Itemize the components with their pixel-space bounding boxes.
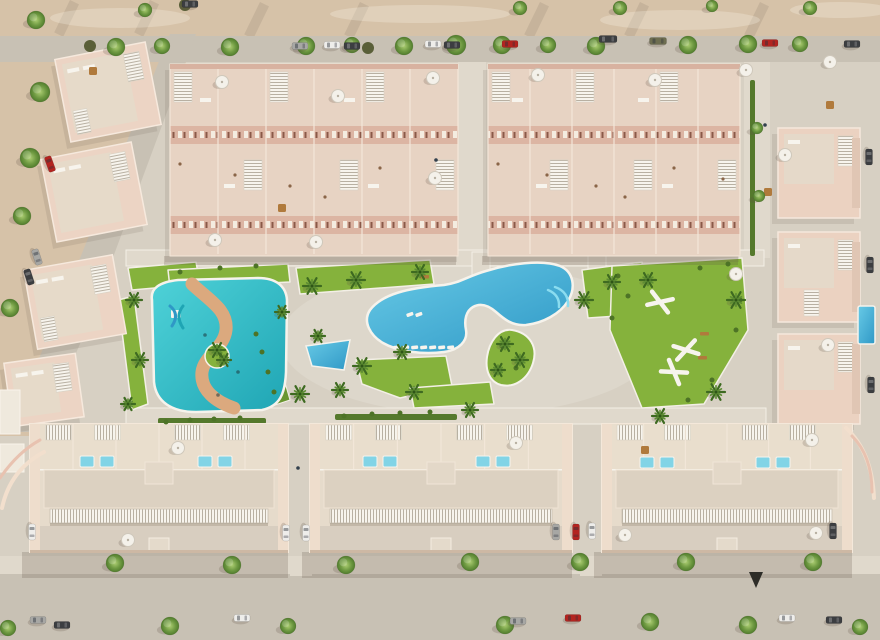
umbrella-pole bbox=[829, 61, 831, 63]
palm-crown bbox=[216, 349, 219, 352]
umbrella-pole bbox=[315, 241, 317, 243]
palm-crown bbox=[519, 359, 522, 362]
front-wall bbox=[30, 550, 288, 553]
shrub bbox=[272, 390, 277, 395]
car-body bbox=[866, 149, 873, 165]
pergola bbox=[366, 72, 384, 102]
umbrella-pole bbox=[745, 69, 747, 71]
tree-highlight bbox=[589, 39, 597, 47]
car-rear-window bbox=[455, 43, 458, 48]
car-windshield bbox=[847, 42, 850, 47]
palm-crown bbox=[715, 391, 718, 394]
edge-building bbox=[0, 390, 20, 434]
patio-furniture bbox=[545, 173, 548, 176]
lounger bbox=[447, 345, 454, 349]
pergola bbox=[340, 160, 358, 190]
tree-highlight bbox=[108, 556, 116, 564]
patio-furniture bbox=[672, 166, 675, 169]
left-villa bbox=[50, 42, 162, 149]
entry-step bbox=[149, 538, 169, 552]
car bbox=[26, 522, 36, 540]
right-villa bbox=[772, 334, 860, 430]
tree-highlight bbox=[156, 40, 163, 47]
car-rear-window bbox=[303, 44, 306, 49]
shrub bbox=[238, 416, 243, 421]
pergola bbox=[804, 290, 819, 316]
roof-lounger bbox=[368, 184, 379, 188]
pergola bbox=[660, 72, 678, 102]
tree-highlight bbox=[755, 192, 760, 197]
alley bbox=[458, 62, 486, 258]
car-windshield bbox=[185, 2, 188, 7]
tree-highlight bbox=[573, 555, 581, 563]
louver-shadow bbox=[330, 523, 552, 526]
palm-crown bbox=[735, 299, 738, 302]
pergola bbox=[838, 136, 853, 166]
tree-highlight bbox=[109, 40, 117, 48]
car-windshield bbox=[868, 260, 873, 263]
patio-set bbox=[278, 204, 286, 212]
car-body bbox=[425, 41, 441, 48]
entry-step bbox=[717, 538, 737, 552]
car-rear-window bbox=[41, 618, 44, 623]
car-windshield bbox=[304, 528, 309, 531]
umbrella-pole bbox=[624, 534, 626, 536]
bench bbox=[700, 332, 709, 336]
car-body bbox=[30, 617, 46, 624]
umbrella-pole bbox=[827, 344, 829, 346]
left-villa bbox=[36, 142, 148, 249]
shrub bbox=[178, 270, 183, 275]
tree-highlight bbox=[806, 555, 814, 563]
tree-highlight bbox=[339, 558, 347, 566]
car-body bbox=[54, 622, 70, 629]
palm-crown bbox=[647, 279, 650, 282]
side-pool bbox=[858, 306, 875, 344]
car-body bbox=[779, 615, 795, 622]
shrub bbox=[254, 264, 259, 269]
car-windshield bbox=[284, 528, 289, 531]
patio-furniture bbox=[323, 195, 326, 198]
palm-crown bbox=[361, 365, 364, 368]
car-body bbox=[830, 523, 837, 539]
car-windshield bbox=[428, 42, 431, 47]
bottom-building bbox=[30, 424, 288, 553]
palm-crown bbox=[133, 299, 136, 302]
lounger bbox=[429, 345, 436, 349]
car-windshield bbox=[869, 380, 874, 383]
lounger bbox=[411, 345, 418, 349]
louver-shadow bbox=[50, 523, 268, 526]
lounger bbox=[438, 345, 445, 349]
car-body bbox=[599, 36, 617, 43]
palm-crown bbox=[413, 391, 416, 394]
car-body bbox=[510, 618, 526, 625]
tree-highlight bbox=[498, 618, 506, 626]
car-body bbox=[234, 615, 250, 622]
tree-highlight bbox=[29, 13, 37, 21]
pergola bbox=[270, 72, 288, 102]
car-windshield bbox=[554, 527, 559, 530]
pergola bbox=[742, 425, 768, 440]
car bbox=[865, 375, 875, 393]
patio-furniture bbox=[594, 184, 597, 187]
car bbox=[864, 255, 874, 273]
bottom-buildings bbox=[0, 424, 874, 553]
car bbox=[760, 40, 778, 50]
bottom-building bbox=[310, 424, 572, 553]
palm-crown bbox=[583, 299, 586, 302]
shrub bbox=[188, 418, 193, 423]
palm-crown bbox=[139, 359, 142, 362]
tree-highlight bbox=[708, 1, 713, 6]
umbrella-pole bbox=[177, 447, 179, 449]
car bbox=[322, 42, 340, 52]
umbrella-pole bbox=[654, 79, 656, 81]
palm-crown bbox=[401, 351, 404, 354]
car-body bbox=[502, 41, 518, 48]
car-windshield bbox=[295, 44, 298, 49]
tree-highlight bbox=[282, 620, 289, 627]
car-rear-window bbox=[790, 616, 793, 621]
roof-lounger bbox=[788, 244, 800, 248]
patio-set bbox=[89, 67, 97, 75]
tree-highlight bbox=[397, 39, 405, 47]
car-rear-window bbox=[855, 42, 858, 47]
front-wall bbox=[602, 550, 852, 553]
umbrella-pole bbox=[221, 81, 223, 83]
car-body bbox=[553, 524, 560, 540]
pergola bbox=[174, 72, 192, 102]
palm-crown bbox=[299, 393, 302, 396]
tree-highlight bbox=[679, 555, 687, 563]
shrub bbox=[710, 378, 715, 383]
car-body bbox=[573, 524, 580, 540]
left-villa bbox=[19, 255, 127, 356]
lounger bbox=[420, 345, 427, 349]
car-body bbox=[589, 523, 596, 539]
roof-pool bbox=[476, 456, 490, 467]
car bbox=[290, 43, 308, 53]
roof-pool bbox=[776, 457, 790, 468]
car-rear-window bbox=[869, 388, 874, 391]
side-wing bbox=[602, 424, 612, 552]
tree-highlight bbox=[805, 3, 811, 9]
car-windshield bbox=[513, 619, 516, 624]
tree-highlight bbox=[140, 5, 146, 11]
palm-crown bbox=[281, 311, 284, 314]
tri-pool bbox=[306, 340, 350, 370]
car-rear-window bbox=[867, 160, 872, 163]
car bbox=[28, 617, 46, 627]
louver-shadow bbox=[622, 523, 832, 526]
car-rear-window bbox=[513, 42, 516, 47]
car-windshield bbox=[867, 152, 872, 155]
patio-set bbox=[641, 446, 649, 454]
car-rear-window bbox=[612, 37, 615, 42]
person bbox=[434, 158, 438, 162]
shrub bbox=[212, 417, 217, 422]
car bbox=[232, 615, 250, 625]
patio-set bbox=[826, 101, 834, 109]
roof-pool bbox=[496, 456, 510, 467]
car-rear-window bbox=[661, 39, 664, 44]
roof-pool bbox=[218, 456, 232, 467]
umbrella-pole bbox=[337, 95, 339, 97]
car-body bbox=[283, 525, 290, 541]
palm-crown bbox=[317, 335, 320, 338]
roof-lounger bbox=[536, 184, 547, 188]
umbrella-pole bbox=[537, 74, 539, 76]
roof-lounger bbox=[662, 184, 673, 188]
car-body bbox=[565, 615, 581, 622]
car bbox=[300, 523, 310, 541]
car-rear-window bbox=[574, 535, 579, 538]
car-windshield bbox=[568, 616, 571, 621]
car-windshield bbox=[574, 527, 579, 530]
car bbox=[563, 615, 581, 625]
shrub bbox=[342, 414, 347, 419]
roof-pool bbox=[640, 457, 654, 468]
pergola bbox=[326, 425, 352, 440]
car-windshield bbox=[590, 526, 595, 529]
pergola bbox=[617, 425, 643, 440]
person bbox=[296, 466, 300, 470]
swimmer bbox=[203, 333, 207, 337]
shrub bbox=[260, 350, 265, 355]
roof-lounger bbox=[512, 98, 523, 102]
tree-highlight bbox=[741, 37, 749, 45]
palm-crown bbox=[419, 271, 422, 274]
patio-furniture bbox=[496, 162, 499, 165]
palm-crown bbox=[355, 279, 358, 282]
roof-lounger bbox=[638, 98, 649, 102]
car bbox=[280, 523, 290, 541]
palm-crown bbox=[469, 409, 472, 412]
car-body bbox=[292, 43, 308, 50]
car bbox=[52, 622, 70, 632]
car-body bbox=[650, 38, 667, 45]
umbrella-pole bbox=[432, 77, 434, 79]
shrub bbox=[370, 412, 375, 417]
shrub bbox=[626, 294, 631, 299]
car-windshield bbox=[602, 37, 605, 42]
car-body bbox=[324, 42, 340, 49]
car-rear-window bbox=[436, 42, 439, 47]
stair-volume bbox=[427, 462, 455, 484]
shrub bbox=[428, 410, 433, 415]
car-windshield bbox=[347, 44, 350, 49]
car-rear-window bbox=[554, 535, 559, 538]
shrub bbox=[734, 328, 739, 333]
louver-band bbox=[330, 509, 552, 523]
car bbox=[550, 522, 560, 540]
side-wing bbox=[842, 424, 852, 552]
shrub bbox=[254, 332, 259, 337]
patio-furniture bbox=[178, 162, 181, 165]
pergola bbox=[45, 425, 71, 440]
shrub bbox=[266, 370, 271, 375]
palm-crown bbox=[497, 369, 500, 372]
shrub bbox=[610, 316, 615, 321]
car-body bbox=[303, 525, 310, 541]
tree-highlight bbox=[33, 85, 42, 94]
car-windshield bbox=[505, 42, 508, 47]
car-body bbox=[444, 42, 460, 49]
tree-highlight bbox=[854, 621, 861, 628]
pergola bbox=[838, 342, 853, 372]
car bbox=[180, 1, 198, 11]
umbrella-pole bbox=[434, 177, 436, 179]
tree-highlight bbox=[643, 615, 651, 623]
shrub bbox=[686, 398, 691, 403]
car bbox=[342, 43, 360, 53]
patio-set bbox=[764, 188, 772, 196]
car-rear-window bbox=[65, 623, 68, 628]
tree-highlight bbox=[163, 619, 171, 627]
palm-crown bbox=[311, 285, 314, 288]
light-patch bbox=[330, 5, 510, 23]
umbrella-pole bbox=[784, 154, 786, 156]
car bbox=[824, 617, 842, 627]
car-windshield bbox=[237, 616, 240, 621]
balcony-strip bbox=[852, 344, 860, 414]
umbrella-pole bbox=[515, 442, 517, 444]
palm-crown bbox=[611, 281, 614, 284]
patio-furniture bbox=[378, 166, 381, 169]
car-body bbox=[844, 41, 860, 48]
roof-pool bbox=[383, 456, 397, 467]
townhouse-block bbox=[483, 64, 740, 262]
street-facade bbox=[170, 64, 458, 69]
tree-highlight bbox=[794, 38, 801, 45]
car-windshield bbox=[765, 41, 768, 46]
car bbox=[423, 41, 441, 51]
car-rear-window bbox=[355, 44, 358, 49]
roof-pool bbox=[80, 456, 94, 467]
patio-furniture bbox=[233, 173, 236, 176]
louver-band bbox=[622, 509, 832, 523]
car bbox=[827, 521, 837, 539]
car-windshield bbox=[782, 616, 785, 621]
aerial-render-residential-complex bbox=[0, 0, 880, 640]
pergola bbox=[492, 72, 510, 102]
swimmer bbox=[236, 370, 240, 374]
roof-lounger bbox=[224, 184, 235, 188]
tree-highlight bbox=[23, 151, 32, 160]
roof-lounger bbox=[344, 98, 355, 102]
roof-pool bbox=[363, 456, 377, 467]
front-wall bbox=[310, 550, 572, 553]
shrub bbox=[218, 266, 223, 271]
car-rear-window bbox=[521, 619, 524, 624]
olive-bush bbox=[84, 40, 96, 52]
roof-lounger bbox=[788, 140, 800, 144]
roof-pool bbox=[100, 456, 114, 467]
patio-furniture bbox=[623, 195, 626, 198]
tree-highlight bbox=[15, 209, 23, 217]
person bbox=[763, 123, 767, 127]
pergola bbox=[634, 160, 652, 190]
louver-band bbox=[50, 509, 268, 523]
car-body bbox=[826, 617, 842, 624]
palm-crown bbox=[659, 415, 662, 418]
tree-highlight bbox=[225, 558, 233, 566]
car-rear-window bbox=[831, 534, 836, 537]
right-villa bbox=[772, 128, 860, 224]
car bbox=[442, 42, 460, 52]
roof-pool bbox=[660, 457, 674, 468]
car-windshield bbox=[831, 526, 836, 529]
car-rear-window bbox=[30, 535, 35, 538]
side-wing bbox=[310, 424, 320, 552]
car-rear-window bbox=[335, 43, 338, 48]
bench bbox=[698, 356, 707, 360]
car-body bbox=[868, 377, 875, 393]
car bbox=[570, 522, 580, 540]
palm-crown bbox=[504, 343, 507, 346]
pergola bbox=[95, 425, 121, 440]
pergola bbox=[224, 425, 250, 440]
pergola bbox=[718, 160, 736, 190]
car-windshield bbox=[30, 527, 35, 530]
stair-volume bbox=[145, 462, 173, 484]
scene-svg bbox=[0, 0, 880, 640]
roof-pool bbox=[756, 457, 770, 468]
tree-highlight bbox=[542, 39, 549, 46]
car-windshield bbox=[653, 39, 656, 44]
pergola bbox=[665, 425, 691, 440]
entry-step bbox=[431, 538, 451, 552]
hedge-row bbox=[335, 414, 457, 420]
car-rear-window bbox=[245, 616, 248, 621]
light-patch bbox=[50, 8, 190, 28]
swimmer bbox=[216, 393, 220, 397]
umbrella-pole bbox=[735, 273, 737, 275]
umbrella-pole bbox=[811, 439, 813, 441]
right-villa bbox=[772, 232, 860, 328]
tree-highlight bbox=[463, 555, 471, 563]
car-rear-window bbox=[576, 616, 579, 621]
car bbox=[777, 615, 795, 625]
car-body bbox=[762, 40, 778, 47]
car-body bbox=[344, 43, 360, 50]
tree-highlight bbox=[753, 124, 758, 129]
alley bbox=[744, 62, 770, 258]
umbrella-pole bbox=[214, 239, 216, 241]
car-windshield bbox=[327, 43, 330, 48]
balcony-strip bbox=[852, 138, 860, 208]
roof-pool bbox=[198, 456, 212, 467]
townhouse-block bbox=[165, 64, 458, 262]
car-windshield bbox=[829, 618, 832, 623]
tree-highlight bbox=[2, 622, 9, 629]
car-windshield bbox=[33, 618, 36, 623]
pergola bbox=[174, 425, 200, 440]
car bbox=[500, 41, 518, 51]
shrub bbox=[698, 266, 703, 271]
tree-highlight bbox=[741, 618, 749, 626]
car bbox=[586, 521, 596, 539]
shrub bbox=[398, 411, 403, 416]
pergola bbox=[244, 160, 262, 190]
tree-highlight bbox=[681, 38, 689, 46]
car-body bbox=[867, 257, 874, 273]
car-windshield bbox=[447, 43, 450, 48]
shrub bbox=[164, 420, 169, 425]
palm-crown bbox=[223, 359, 226, 362]
shrub bbox=[726, 262, 731, 267]
